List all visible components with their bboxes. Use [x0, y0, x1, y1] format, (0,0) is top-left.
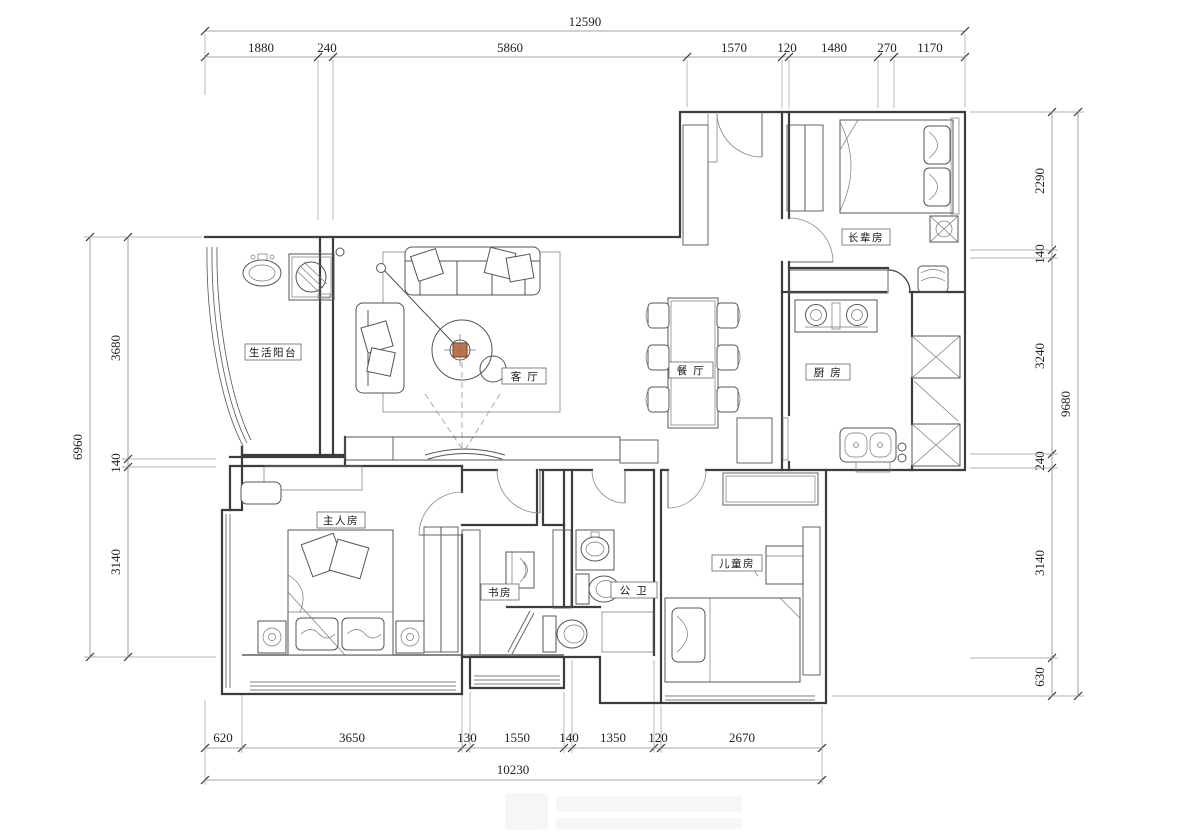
dimension-left: 6960 3680 140 3140	[70, 237, 128, 657]
dim: 2670	[729, 730, 755, 745]
dim-bottom-total: 10230	[497, 762, 530, 777]
dim: 1170	[917, 40, 943, 55]
dim: 1350	[600, 730, 626, 745]
room-kitchen: 厨 房	[795, 300, 960, 472]
entry-door-arc	[717, 112, 762, 157]
dim: 270	[877, 40, 897, 55]
sofa-side	[356, 303, 404, 393]
pillow	[296, 618, 338, 650]
pillow	[924, 168, 950, 206]
tv-cabinet	[345, 437, 620, 460]
toilet-2	[543, 616, 587, 652]
dim: 120	[777, 40, 797, 55]
dim: 620	[213, 730, 233, 745]
wardrobe	[723, 473, 818, 505]
master-side-window	[226, 514, 230, 688]
dim: 3240	[1032, 343, 1047, 369]
washbasin	[576, 530, 614, 570]
column-cabinet	[345, 437, 393, 460]
room-label-dining: 餐 厅	[669, 362, 713, 378]
elder-door-arc	[789, 218, 833, 262]
room-label-kids: 儿童房	[712, 555, 762, 571]
dim: 1480	[821, 40, 847, 55]
vestibule-door-arc	[497, 470, 540, 513]
elder-label: 长辈房	[848, 231, 884, 244]
kids-door-arc	[668, 470, 706, 508]
ac-unit	[241, 482, 281, 504]
tv-wall	[345, 437, 658, 463]
bath-label: 公 卫	[620, 585, 648, 597]
duct-mark	[914, 381, 958, 421]
room-master: 主人房	[241, 466, 462, 655]
floor-drain	[336, 248, 344, 256]
master-label: 主人房	[323, 514, 359, 527]
pillow	[506, 254, 534, 282]
dim: 3140	[1032, 550, 1047, 576]
dim: 1550	[504, 730, 530, 745]
bed	[288, 530, 393, 655]
bookcase-column	[462, 530, 480, 655]
dim: 1880	[248, 40, 274, 55]
dim: 630	[1032, 667, 1047, 687]
dim: 240	[317, 40, 337, 55]
study-label: 书房	[488, 586, 512, 599]
room-label-living: 客 厅	[502, 368, 546, 384]
pillow	[367, 348, 395, 376]
stove	[795, 300, 877, 332]
floor-plan-canvas: 12590 1880 240 5860 1570 120 1480 270 11…	[0, 0, 1200, 839]
wash-basin	[243, 254, 281, 286]
wc-door	[508, 611, 534, 654]
dim: 140	[1032, 244, 1047, 264]
hall-cabinet	[620, 440, 658, 463]
bed	[665, 598, 800, 682]
wall-lamp	[377, 264, 386, 273]
tv	[425, 449, 505, 459]
bed	[840, 118, 959, 214]
shower-floor	[602, 612, 653, 652]
kids-label: 儿童房	[719, 557, 755, 570]
dimension-bottom: 10230 620 3650 130 1550 140 1350 120 267…	[205, 730, 822, 780]
dim-left-total: 6960	[70, 434, 85, 460]
low-cabinet-row	[789, 270, 888, 293]
living-label: 客 厅	[511, 370, 539, 383]
washing-machine	[289, 254, 334, 300]
nightstand-left	[258, 621, 286, 653]
master-bay-window	[250, 682, 456, 690]
wall-notch	[708, 112, 717, 162]
stool	[918, 266, 948, 292]
flue	[930, 216, 958, 242]
floor-plan-page: 12590 1880 240 5860 1570 120 1480 270 11…	[0, 0, 1200, 839]
bath-cabinet-column	[553, 530, 571, 608]
room-label-study: 书房	[481, 584, 519, 600]
room-label-bath: 公 卫	[611, 582, 657, 598]
shower-wc	[508, 611, 653, 654]
room-kids: 儿童房	[665, 470, 820, 682]
nightstand-right	[396, 621, 424, 653]
dim: 3650	[339, 730, 365, 745]
dim: 1570	[721, 40, 747, 55]
balcony-label: 生活阳台	[249, 346, 297, 359]
room-study: 书房	[462, 470, 540, 655]
cabinet-column	[803, 527, 820, 675]
dining-label: 餐 厅	[677, 364, 705, 377]
shaft-upper	[912, 336, 960, 378]
desk	[506, 552, 534, 588]
room-balcony: 生活阳台	[243, 248, 344, 360]
dimension-top: 12590 1880 240 5860 1570 120 1480 270 11…	[205, 14, 965, 57]
kids-window	[665, 696, 815, 700]
room-elder: 长辈房	[787, 118, 959, 293]
study-bay-window	[474, 676, 560, 684]
room-label-kitchen: 厨 房	[806, 364, 850, 380]
dim: 5860	[497, 40, 523, 55]
dim: 120	[648, 730, 668, 745]
dim: 3140	[108, 549, 123, 575]
sofa-main	[405, 247, 540, 295]
sink	[840, 428, 906, 462]
room-label-master: 主人房	[317, 512, 365, 528]
shoe-cabinet	[737, 418, 772, 463]
entry-cabinet	[683, 125, 708, 245]
dim: 130	[457, 730, 477, 745]
kitchen-sliding-door	[783, 418, 788, 460]
dim: 3680	[108, 335, 123, 361]
room-label-balcony: 生活阳台	[245, 344, 301, 360]
dim: 140	[559, 730, 579, 745]
shaft-lower	[912, 424, 960, 466]
bath-door-arc	[592, 470, 625, 503]
pillow	[342, 618, 384, 650]
room-dining: 餐 厅	[646, 298, 740, 428]
dimension-right: 9680 2290 140 3240 240 3140 630	[1032, 112, 1078, 696]
faucet	[898, 443, 906, 451]
dim: 140	[108, 453, 123, 473]
kitchen-label: 厨 房	[814, 366, 842, 379]
balcony-window	[207, 247, 251, 446]
room-label-elder: 长辈房	[842, 229, 890, 245]
dim-top-total: 12590	[569, 14, 602, 29]
watermark	[505, 793, 742, 830]
dim: 2290	[1032, 168, 1047, 194]
dim-right-total: 9680	[1058, 391, 1073, 417]
pillow	[924, 126, 950, 164]
room-living: 客 厅	[345, 247, 658, 463]
